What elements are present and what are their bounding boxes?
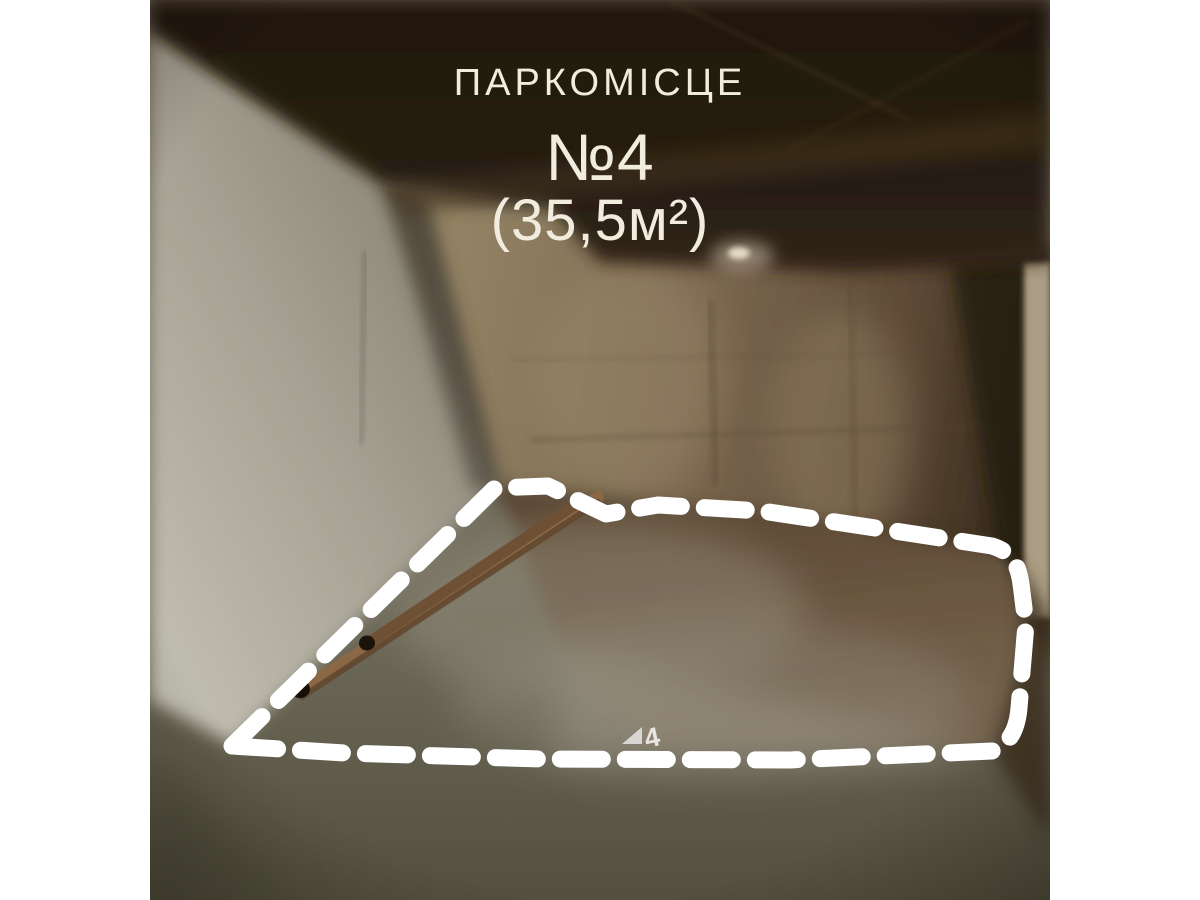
garage-scene: 4 <box>150 0 1050 900</box>
parking-spot-photo: 4 ПАРКОМІСЦЕ №4 (35,5м²) <box>150 0 1050 900</box>
page-background: 4 ПАРКОМІСЦЕ №4 (35,5м²) <box>0 0 1200 900</box>
